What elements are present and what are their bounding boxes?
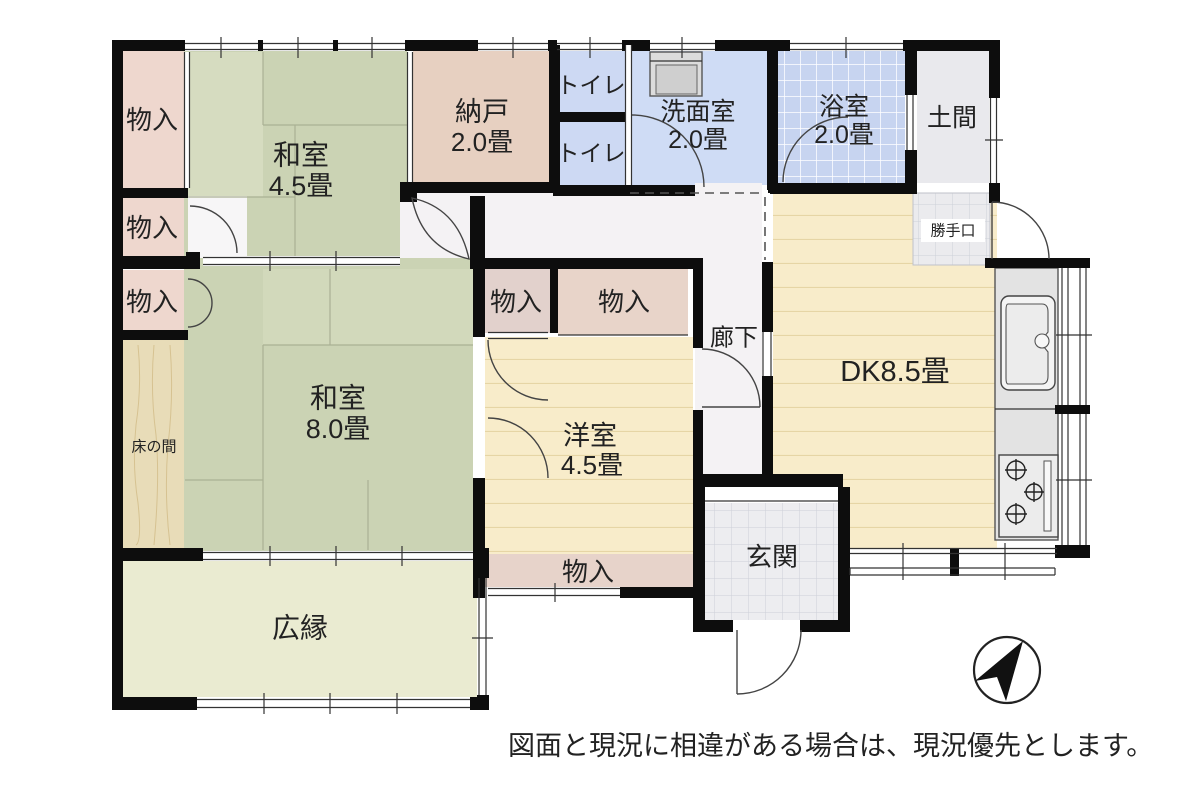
disclaimer-text: 図面と現況に相違がある場合は、現況優先とします。 [508, 731, 1153, 761]
floor-plan-drawing: 物入 物入 物入 和室 4.5畳 納戸 2.0畳 トイレ トイレ 洗面室 2.0… [0, 0, 1200, 797]
katteguchi-label-group: 勝手口 [921, 219, 985, 242]
washitsu8-size: 8.0畳 [306, 414, 371, 444]
gas-stove [999, 455, 1058, 537]
closet-6-label: 物入 [562, 557, 614, 587]
dk-label: DK8.5畳 [840, 356, 950, 388]
bath-size: 2.0畳 [814, 121, 874, 149]
closet-1-label: 物入 [126, 105, 178, 135]
doma-label: 土間 [927, 104, 977, 132]
floor-plan-page: 物入 物入 物入 和室 4.5畳 納戸 2.0畳 トイレ トイレ 洗面室 2.0… [0, 0, 1200, 797]
closet-4-label: 物入 [490, 287, 542, 317]
bath-name: 浴室 [819, 93, 869, 121]
washbasin [650, 52, 702, 96]
youshitsu-name: 洋室 [563, 421, 617, 451]
washitsu-4-5-tatami-shade [185, 52, 263, 197]
closet-5-label: 物入 [598, 287, 650, 317]
closet-3-label: 物入 [126, 287, 178, 317]
genkan-label: 玄関 [746, 542, 798, 572]
kitchen-sink [1001, 296, 1055, 390]
toilet-lower-label: トイレ [557, 140, 626, 166]
entrance-door [737, 630, 801, 694]
youshitsu-size: 4.5畳 [561, 450, 623, 480]
katteguchi-door [992, 202, 1049, 259]
hiroen-label: 広縁 [272, 613, 328, 644]
nando-size: 2.0畳 [451, 127, 513, 157]
washitsu8-name: 和室 [310, 383, 366, 414]
washitsu-8-tatami-shade [263, 269, 473, 345]
dk-hatch-opening [762, 332, 773, 376]
window-bath-east [907, 95, 913, 150]
washitsu45-name: 和室 [273, 140, 329, 171]
closet-2-label: 物入 [126, 213, 178, 243]
washitsu45-size: 4.5畳 [269, 171, 334, 201]
closet-2-door-swing-area [188, 196, 247, 258]
rouka-label: 廊下 [710, 325, 758, 352]
toilet-upper-label: トイレ [557, 72, 626, 98]
senmen-name: 洗面室 [660, 98, 735, 126]
nando-name: 納戸 [455, 97, 509, 127]
katteguchi-label: 勝手口 [930, 223, 975, 240]
senmen-size: 2.0畳 [668, 126, 728, 154]
north-arrow-icon [974, 637, 1040, 703]
tokonoma-label: 床の間 [131, 439, 176, 456]
